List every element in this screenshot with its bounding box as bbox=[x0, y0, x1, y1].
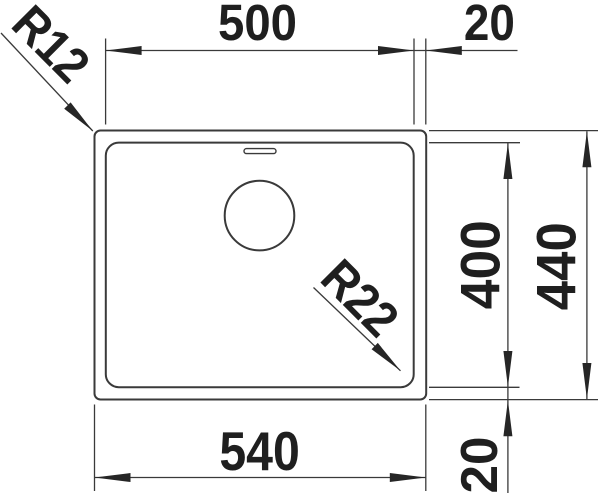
svg-text:540: 540 bbox=[219, 420, 300, 482]
svg-text:20: 20 bbox=[451, 437, 509, 493]
svg-text:400: 400 bbox=[449, 220, 512, 309]
svg-text:500: 500 bbox=[218, 0, 297, 51]
svg-text:440: 440 bbox=[525, 222, 588, 310]
svg-text:20: 20 bbox=[464, 0, 515, 51]
